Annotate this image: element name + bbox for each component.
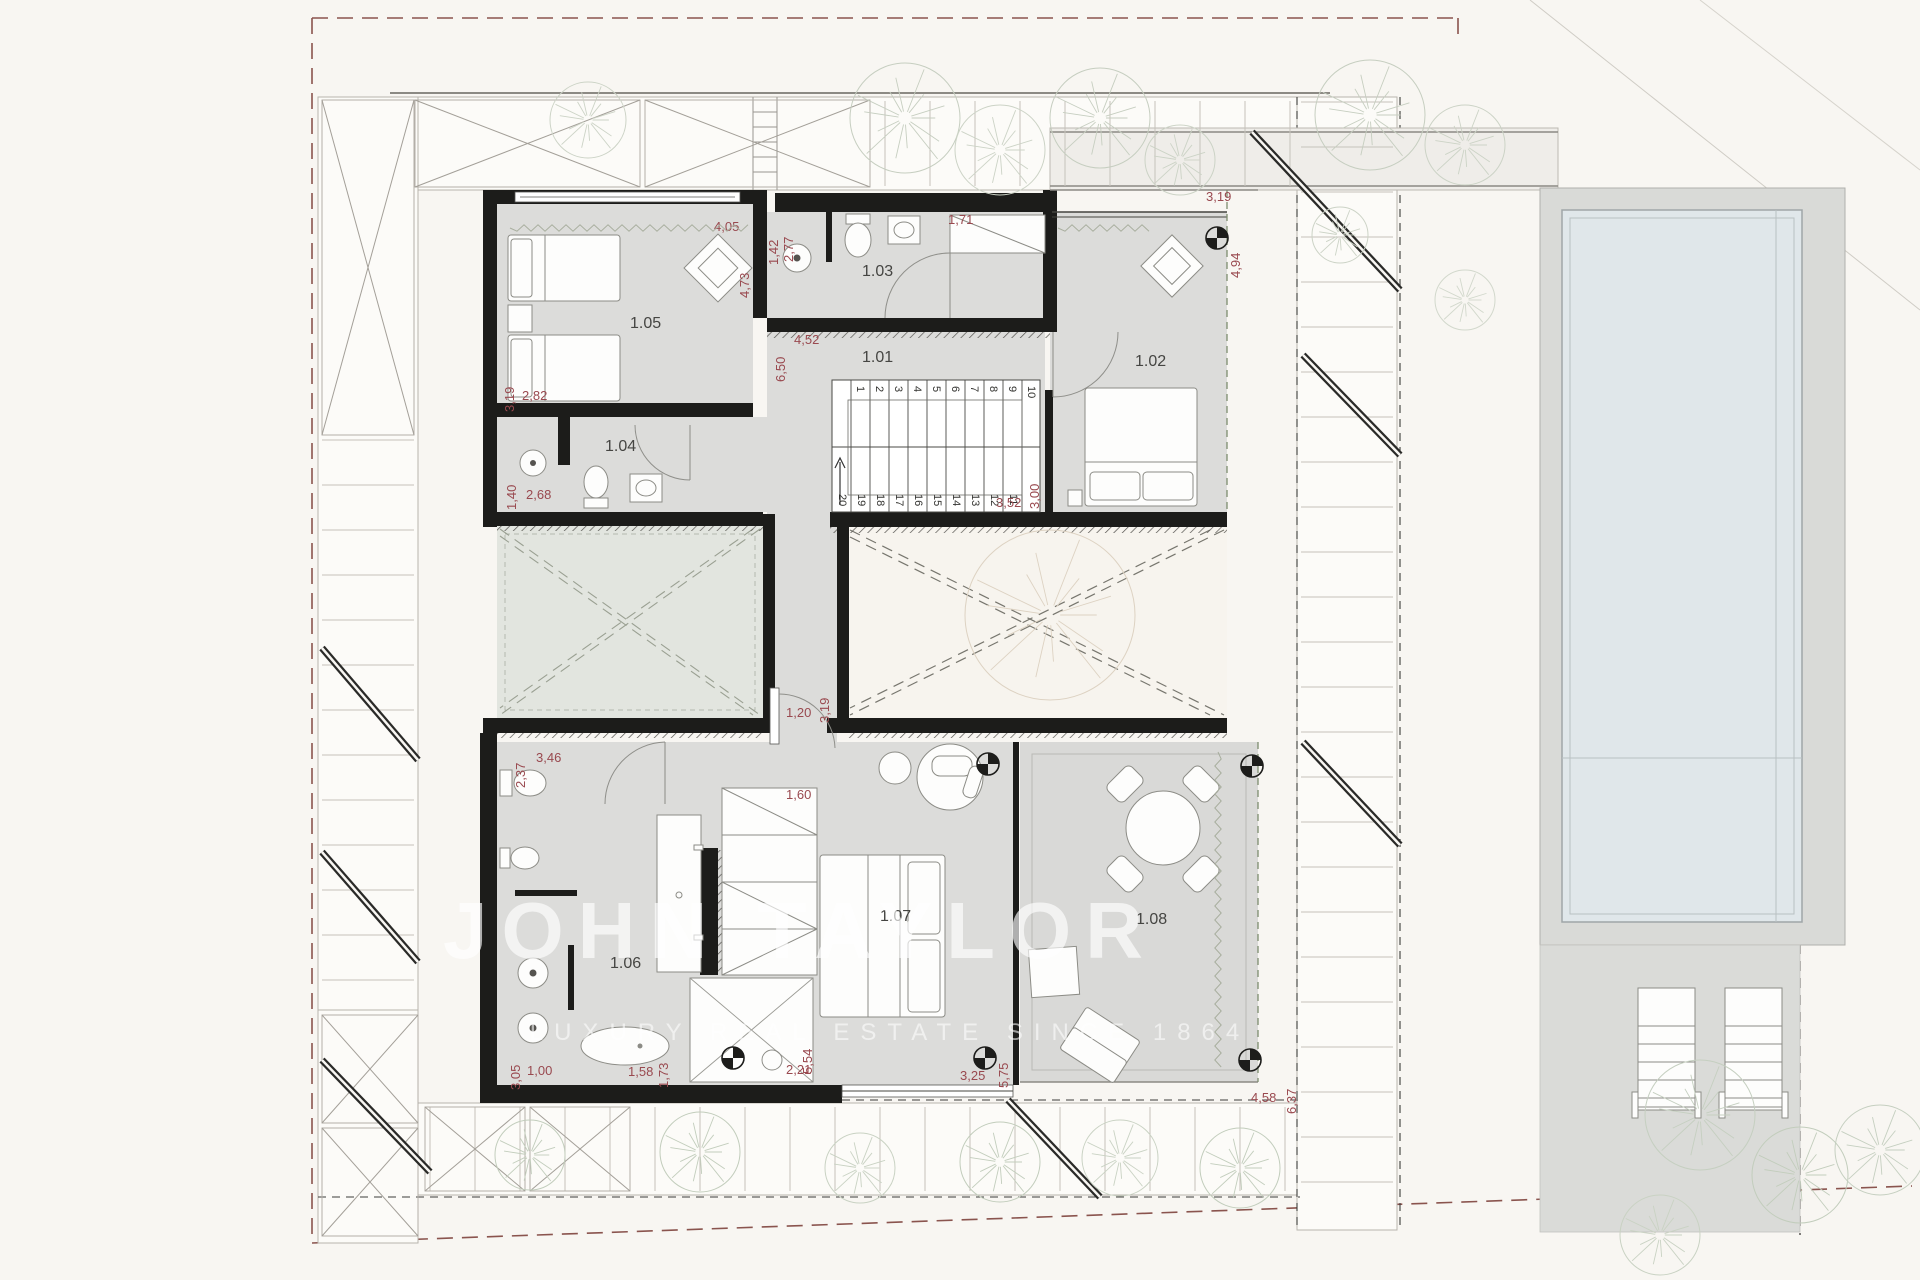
dimension-label: 4,52 — [794, 332, 819, 347]
tree-branch — [1465, 304, 1466, 317]
tree-branch — [1883, 1154, 1906, 1183]
tree-branch — [1467, 303, 1483, 322]
tree-branch — [1444, 302, 1462, 319]
dimension-label: 3,52 — [996, 495, 1021, 510]
tree-icon — [1435, 270, 1495, 330]
survey-marker-quad — [1252, 755, 1263, 766]
room-label-105: 1.05 — [630, 315, 661, 332]
courtyard-right — [847, 527, 1227, 718]
tread-number: 10 — [1025, 386, 1037, 398]
tread-number: 3 — [892, 386, 904, 392]
tree-branch — [1460, 278, 1464, 296]
courtyard-left — [497, 526, 763, 718]
left-deck-band-lower — [318, 1010, 418, 1243]
tread-number: 18 — [874, 494, 886, 506]
dimension-label: 1,71 — [948, 212, 973, 227]
swimming-pool — [1540, 188, 1845, 1232]
tree-branch — [1664, 1238, 1685, 1252]
tree-branch — [1806, 1164, 1835, 1173]
tree-branch — [1660, 1240, 1661, 1257]
dimension-label: 2,82 — [522, 388, 547, 403]
twin-bed — [508, 235, 620, 301]
floor-plan-page: 1 2 3 4 5 6 7 8 9 10 20 19 18 17 16 15 1… — [0, 0, 1920, 1280]
dimension-label: 4,94 — [1228, 253, 1243, 278]
tread-number: 6 — [949, 386, 961, 392]
dimension-label: 1,20 — [786, 705, 811, 720]
tread-number: 7 — [968, 386, 980, 392]
dimension-label: 5,54 — [800, 1049, 815, 1074]
survey-marker-icon — [974, 1047, 996, 1069]
dimension-label: 6,50 — [773, 357, 788, 382]
dimension-label: 1,58 — [628, 1064, 653, 1079]
survey-marker-icon — [722, 1047, 744, 1069]
sun-lounger — [1719, 988, 1788, 1118]
dimension-label: 3,05 — [508, 1065, 523, 1090]
tread-number: 5 — [930, 386, 942, 392]
dimension-label: 3,00 — [1027, 484, 1042, 509]
toilet — [584, 466, 608, 508]
dimension-label: 1,40 — [504, 485, 519, 510]
dimension-label: 1,00 — [527, 1063, 552, 1078]
dimension-label: 3,25 — [960, 1068, 985, 1083]
dimension-label: 4,58 — [1251, 1090, 1276, 1105]
sink — [630, 474, 662, 502]
dimension-label: 2,68 — [526, 487, 551, 502]
tree-branch — [1872, 1155, 1878, 1183]
tree-icon — [1835, 1105, 1920, 1195]
survey-marker-quad — [1250, 1049, 1261, 1060]
tread-number: 16 — [912, 494, 924, 506]
tread-number: 1 — [854, 386, 866, 392]
survey-marker-icon — [1206, 227, 1228, 249]
dimension-label: 1,42 — [766, 240, 781, 265]
dimension-label: 1,60 — [786, 787, 811, 802]
dimension-label: 2,37 — [513, 763, 528, 788]
sink — [888, 216, 920, 244]
tree-outline — [1835, 1105, 1920, 1195]
tread-number: 9 — [1006, 386, 1018, 392]
tree-branch — [1805, 1178, 1830, 1195]
tread-number: 2 — [873, 386, 885, 392]
toilet — [845, 214, 871, 257]
tree-branch — [1883, 1131, 1895, 1146]
room-label-104: 1.04 — [605, 438, 636, 455]
tree-branch — [1884, 1153, 1907, 1169]
tread-number: 8 — [987, 386, 999, 392]
tread-number: 20 — [836, 494, 848, 506]
tree-branch — [1882, 1110, 1896, 1145]
dimension-label: 3,19 — [1206, 189, 1231, 204]
double-bed — [1068, 388, 1197, 506]
side-table — [879, 752, 911, 784]
floor-plan-drawing: 1 2 3 4 5 6 7 8 9 10 20 19 18 17 16 15 1… — [0, 0, 1920, 1280]
tree-branch — [1468, 293, 1486, 299]
tread-number: 15 — [931, 494, 943, 506]
tread-number: 17 — [893, 494, 905, 506]
watermark-tagline: LUXURY REAL ESTATE SINCE 1864 — [530, 1019, 1251, 1046]
washbasin — [520, 450, 546, 476]
tread-number: 19 — [855, 494, 867, 506]
tree-branch — [1663, 1239, 1684, 1265]
room-label-102: 1.02 — [1135, 353, 1166, 370]
nightstand — [508, 305, 532, 332]
room-label-103: 1.03 — [862, 263, 893, 280]
tree-branch — [1849, 1154, 1876, 1179]
tree-branch — [1653, 1240, 1659, 1265]
tree-branch — [1872, 1117, 1878, 1145]
tree-branch — [1880, 1155, 1881, 1174]
tree-branch — [1885, 1140, 1912, 1148]
dimension-label: 3,19 — [817, 698, 832, 723]
tree-branch — [1460, 304, 1464, 322]
tree-branch — [1632, 1238, 1656, 1261]
tree-branch — [1804, 1180, 1829, 1211]
bidet — [500, 847, 539, 869]
tree-branch — [1802, 1133, 1817, 1170]
dimension-label: 1,73 — [656, 1063, 671, 1088]
tread-number: 4 — [911, 386, 923, 392]
staircase: 1 2 3 4 5 6 7 8 9 10 20 19 18 17 16 15 1… — [832, 380, 1040, 512]
survey-marker-icon — [1241, 755, 1263, 777]
dimension-label: 6,37 — [1284, 1089, 1299, 1114]
watermark-brand: JOHN TAYLOR — [443, 886, 1157, 975]
tree-branch — [1800, 1181, 1802, 1202]
tree-branch — [1841, 1131, 1875, 1147]
dimension-label: 5,75 — [996, 1063, 1011, 1088]
survey-marker-icon — [1239, 1049, 1261, 1071]
left-deck-band — [318, 97, 418, 1010]
tree-branch — [1804, 1154, 1817, 1170]
room-label-101: 1.01 — [862, 349, 893, 366]
tread-number: 14 — [950, 494, 962, 506]
dimension-label: 2,77 — [781, 237, 796, 262]
survey-marker-icon — [977, 753, 999, 775]
pool-walkway — [1050, 128, 1558, 190]
tread-number: 13 — [969, 494, 981, 506]
dimension-label: 3,19 — [502, 387, 517, 412]
watermark: JOHN TAYLOR LUXURY REAL ESTATE SINCE 186… — [443, 886, 1250, 1046]
pool-water — [1562, 210, 1802, 922]
tree-outline — [1435, 270, 1495, 330]
dimension-label: 3,46 — [536, 750, 561, 765]
dimension-label: 4,73 — [737, 273, 752, 298]
